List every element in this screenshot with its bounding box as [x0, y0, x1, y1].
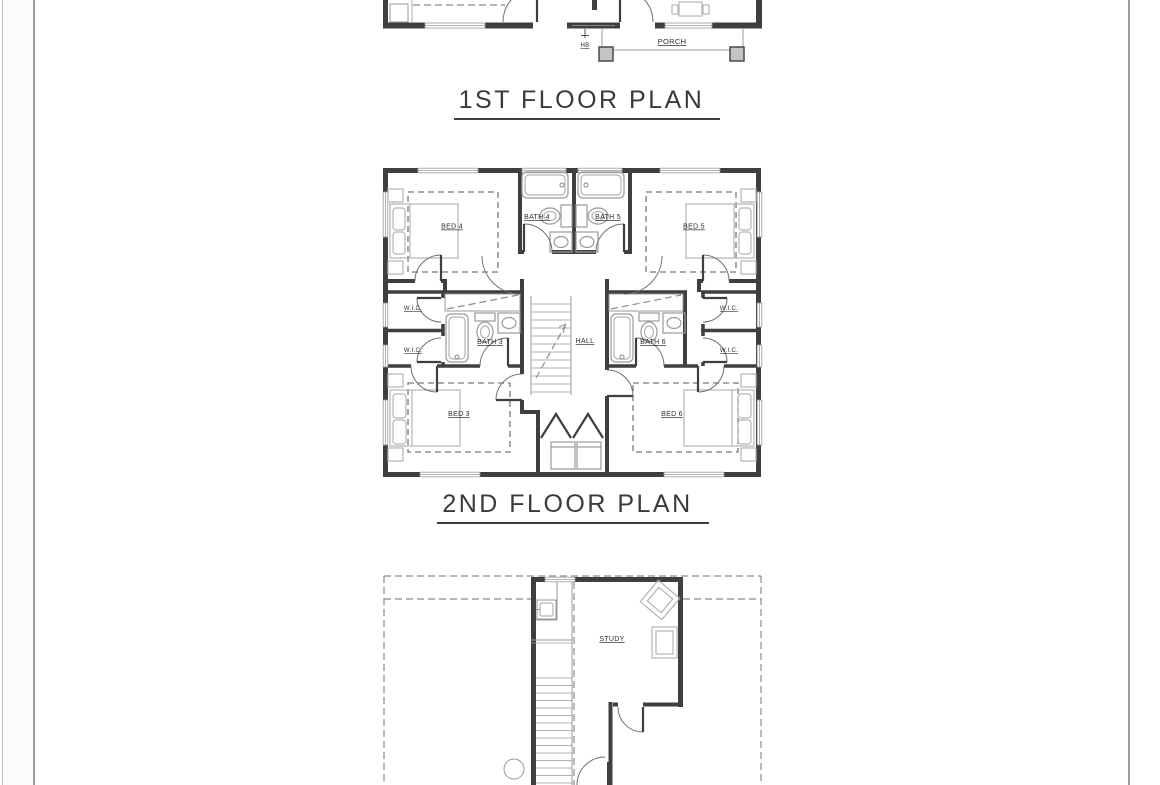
- dining-table: [672, 2, 709, 16]
- staircase: [531, 296, 571, 395]
- page-border-left: [33, 0, 35, 785]
- bath3-label: BATH 3: [477, 339, 503, 346]
- bath6-fixtures: [609, 294, 685, 362]
- porch-column: [599, 47, 613, 61]
- bed5-label: BED 5: [683, 224, 705, 231]
- first-floor-interior: [390, 0, 709, 22]
- bed6-label: BED 6: [661, 411, 683, 418]
- hall-label: HALL: [576, 338, 595, 345]
- entry-door: [503, 0, 537, 22]
- wic-label: W.I.C.: [720, 348, 738, 354]
- study-label: STUDY: [599, 636, 624, 643]
- study-door: [618, 707, 643, 732]
- bath4-label: BATH 4: [524, 214, 550, 221]
- second-floor-title: 2ND FLOOR PLAN: [423, 490, 723, 524]
- study-chairs: [640, 580, 679, 658]
- bed4-label: BED 4: [441, 224, 463, 231]
- bed3-label: BED 3: [448, 411, 470, 418]
- bath5-label: BATH 5: [595, 214, 621, 221]
- hose-bib-symbol: [581, 29, 589, 38]
- study-walls: [531, 577, 683, 785]
- bath6-label: BATH 6: [640, 339, 666, 346]
- laundry-closet: [541, 414, 603, 469]
- bed5-furniture: [686, 189, 756, 274]
- page-gutter-left: [3, 0, 33, 785]
- bed6-furniture: [684, 374, 756, 461]
- hose-bib-label: HB: [581, 43, 590, 49]
- first-floor-plan-drawing: HB PORCH: [380, 0, 765, 62]
- porch-column: [730, 47, 744, 61]
- porch-label: PORCH: [658, 37, 687, 46]
- floor-plan-document: HB PORCH 1ST FLOOR PLAN: [0, 0, 1160, 785]
- bed4-furniture: [388, 189, 458, 274]
- column-circle: [504, 759, 524, 779]
- second-floor-plan-drawing: BED 4 BED 5 BED 3 BED 6 BATH 4 BATH 5 BA…: [380, 164, 765, 480]
- page-border-right: [1128, 0, 1130, 785]
- wic-label: W.I.C.: [720, 306, 738, 312]
- third-floor-plan-drawing: STUDY: [380, 570, 765, 785]
- study-window: [545, 577, 575, 582]
- bath5-fixtures: [576, 172, 624, 252]
- wic-label: W.I.C.: [404, 306, 422, 312]
- porch-door: [620, 0, 653, 22]
- study-sink: [536, 582, 557, 620]
- lower-door-arc: [577, 757, 605, 785]
- bath4-fixtures: [522, 172, 572, 252]
- wic-label: W.I.C.: [404, 348, 422, 354]
- first-floor-title: 1ST FLOOR PLAN: [437, 86, 737, 120]
